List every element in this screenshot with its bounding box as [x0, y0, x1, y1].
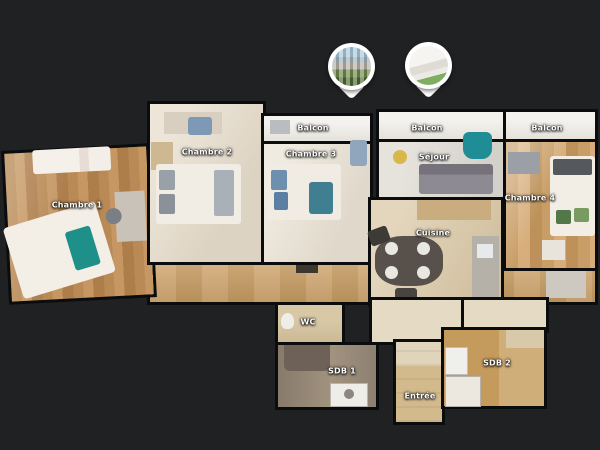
teal-armchair [463, 132, 492, 159]
sink [477, 244, 493, 258]
room-chambre-1[interactable] [4, 146, 154, 301]
plate [417, 242, 430, 255]
plate [385, 266, 398, 279]
bed [267, 164, 341, 220]
room-label-chambre-1: Chambre 1 [52, 201, 103, 210]
room-label-entree: Entrée [405, 392, 436, 401]
desk [508, 152, 540, 174]
sink [445, 347, 468, 375]
exterior-city-thumbnail [332, 47, 371, 86]
room-label-sdb-2: SDB 2 [483, 359, 511, 368]
green-pillow [556, 210, 571, 224]
room-hall[interactable] [464, 300, 546, 330]
bed-main [3, 201, 116, 300]
photo-pin-balcony[interactable] [405, 42, 452, 102]
room-label-balcon-1: Balcon [297, 124, 328, 133]
shower [445, 376, 481, 407]
floor-lamp [393, 150, 407, 164]
dining-table [375, 236, 443, 286]
balcony-interior-thumbnail [409, 46, 448, 85]
pillow [274, 192, 288, 210]
green-pillow [574, 208, 589, 222]
pillow [159, 194, 175, 214]
room-label-balcon-3: Balcon [531, 124, 562, 133]
teal-blanket [65, 225, 102, 271]
toilet [281, 313, 294, 329]
room-label-wc: WC [300, 318, 315, 327]
chair [350, 140, 367, 166]
washing-machine [330, 383, 368, 407]
room-label-cuisine: Cuisine [416, 229, 450, 238]
room-label-chambre-3: Chambre 3 [286, 150, 337, 159]
bath-cabinet [506, 330, 544, 348]
room-label-chambre-2: Chambre 2 [182, 148, 233, 157]
bed-secondary [32, 146, 111, 174]
room-label-sdb-1: SDB 1 [328, 367, 356, 376]
room-sdb-1[interactable] [278, 345, 376, 407]
photo-pin-exterior[interactable] [328, 43, 375, 103]
room-label-chambre-4: Chambre 4 [505, 194, 556, 203]
plate [417, 266, 430, 279]
floorplan-viewer: Chambre 1 Chambre 2 Balcon Chambre 3 Bal… [0, 0, 600, 450]
room-label-sejour: Séjour [419, 153, 449, 162]
desk [114, 191, 147, 243]
bathtub [284, 345, 330, 371]
desk-chair [188, 117, 212, 135]
side-table [542, 240, 565, 260]
sofa [419, 164, 493, 194]
balcony-furniture [270, 120, 290, 134]
room-chambre-3[interactable] [264, 144, 370, 262]
pillow [553, 159, 592, 175]
desk-chair [105, 208, 122, 225]
appliance [546, 266, 586, 298]
kitchen-counter [472, 236, 499, 300]
room-chambre-4[interactable] [506, 142, 595, 268]
pillow [159, 170, 175, 190]
teal-blanket [309, 182, 333, 214]
room-sdb-2[interactable] [444, 330, 544, 406]
doormat [296, 264, 318, 273]
bed [156, 164, 241, 224]
pin-circle [405, 42, 452, 89]
kitchen-cabinets [417, 200, 491, 220]
pin-circle [328, 43, 375, 90]
plate [385, 242, 398, 255]
blanket [214, 170, 234, 216]
washer-door [344, 389, 354, 399]
room-cuisine[interactable] [371, 200, 501, 304]
room-label-balcon-2: Balcon [411, 124, 442, 133]
room-chambre-2[interactable] [150, 104, 263, 262]
bed [550, 156, 595, 236]
pillow [271, 170, 287, 190]
room-entree[interactable] [396, 342, 442, 422]
